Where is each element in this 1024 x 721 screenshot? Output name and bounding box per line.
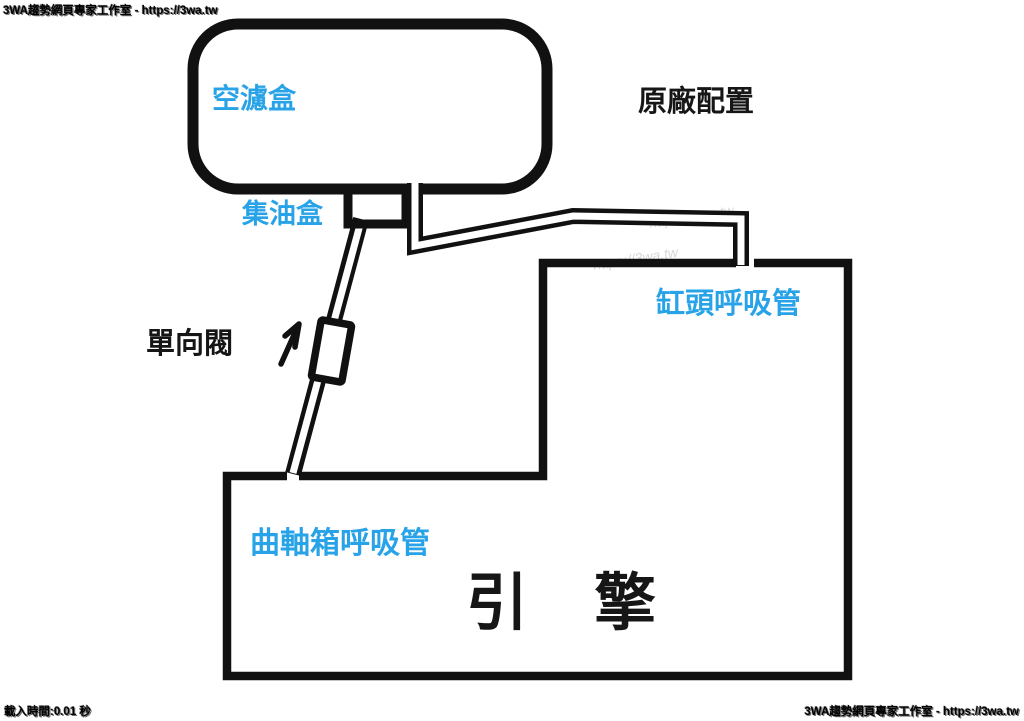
load-time-text: 載入時間:0.01 秒 bbox=[4, 703, 91, 719]
oil-collector-label: 集油盒 bbox=[242, 200, 323, 230]
cylinder-head-breather-label: 缸頭呼吸管 bbox=[656, 289, 801, 321]
engine-label: 引 擎 bbox=[466, 570, 658, 638]
faint-watermark: https://3wa.tw bbox=[592, 244, 680, 273]
watermark-bottom-right: 3WA趨勢網頁專家工作室 - https://3wa.tw bbox=[804, 703, 1019, 719]
crankcase-breather-label: 曲軸箱呼吸管 bbox=[250, 527, 430, 560]
one-way-valve-label: 單向閥 bbox=[146, 329, 233, 361]
one-way-valve-shape bbox=[311, 320, 352, 383]
cylinder-head-tube-outer bbox=[415, 183, 741, 266]
watermark-top-left: 3WA趨勢網頁專家工作室 - https://3wa.tw bbox=[3, 2, 218, 18]
diagram-title: 原廠配置 bbox=[638, 87, 754, 119]
air-filter-box-label: 空濾盒 bbox=[212, 84, 296, 115]
drawing-canvas: https://3wa.tw https://3wa.tw 空濾盒 原廠配置 集… bbox=[0, 0, 1024, 721]
